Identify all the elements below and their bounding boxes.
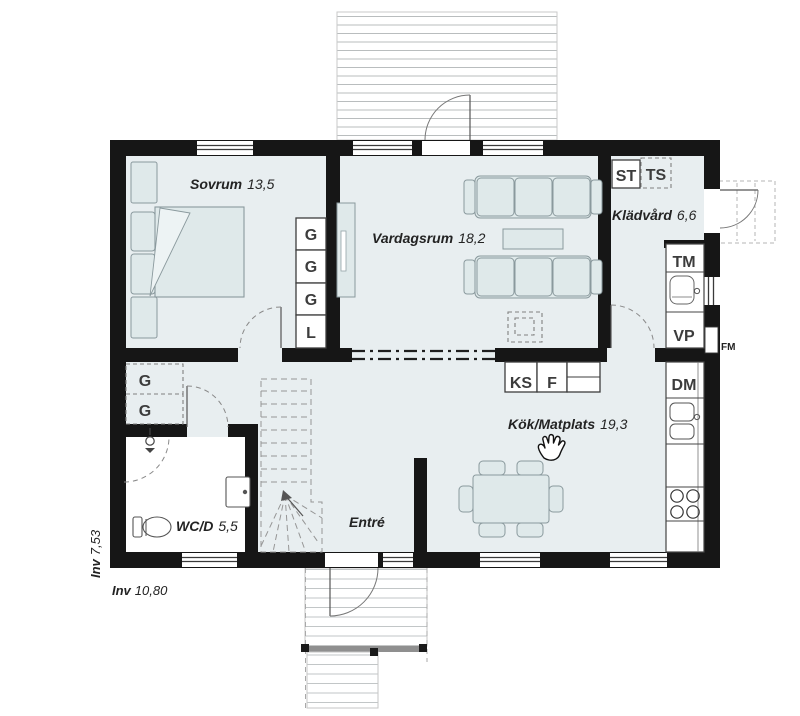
- bedroom-closets: G G G L: [296, 218, 326, 348]
- room-label-wcd: WC/D5,5: [176, 518, 238, 534]
- fm-label: FM: [721, 342, 735, 353]
- nightstand: [131, 297, 157, 338]
- chair: [517, 461, 543, 475]
- room-label-sovrum: Sovrum13,5: [190, 176, 275, 192]
- chair: [459, 486, 473, 512]
- closet-label: G: [305, 227, 317, 244]
- room-label-entre: Entré: [349, 514, 385, 530]
- window: [182, 553, 237, 567]
- room-label-kladvard: Klädvård6,6: [612, 207, 697, 223]
- washbasin-icon: [226, 477, 250, 507]
- pillow: [131, 212, 155, 251]
- porch-post: [419, 644, 427, 652]
- window: [610, 553, 667, 567]
- closet-label: G: [139, 403, 151, 420]
- closet-label: G: [305, 259, 317, 276]
- sofa: [464, 256, 602, 298]
- floorplan-page: G G G L: [0, 0, 800, 716]
- floorplan-drawing: G G G L: [0, 0, 800, 716]
- dimension-inner-width: Inv10,80: [112, 583, 168, 598]
- dm-label: DM: [672, 377, 697, 394]
- kitchen-counter: DM: [666, 362, 704, 552]
- window: [197, 141, 253, 155]
- sofa: [464, 176, 602, 218]
- closet-label: G: [139, 373, 151, 390]
- porch-post: [370, 648, 378, 656]
- fm-meter-cabinet: [705, 327, 718, 353]
- chair: [549, 486, 563, 512]
- room-label-kok-matplats: Kök/Matplats19,3: [508, 416, 628, 432]
- window: [704, 277, 720, 305]
- ks-label: KS: [510, 375, 533, 392]
- st-label: ST: [616, 168, 637, 185]
- tm-label: TM: [672, 254, 695, 271]
- room-label-vardagsrum: Vardagsrum18,2: [372, 230, 486, 246]
- porch-post: [301, 644, 309, 652]
- entrance-porch: [301, 568, 427, 708]
- dining-table: [473, 475, 549, 523]
- dimension-inner-depth: Inv7,53: [88, 529, 103, 578]
- window: [480, 553, 540, 567]
- closet-label: G: [305, 292, 317, 309]
- top-deck: [337, 12, 557, 140]
- window: [483, 141, 543, 155]
- f-label: F: [547, 375, 557, 392]
- nightstand: [131, 162, 157, 203]
- media-shelf: [337, 203, 355, 297]
- coffee-table: [503, 229, 563, 249]
- ts-label: TS: [646, 167, 667, 184]
- laundry-counter: TM VP: [666, 244, 704, 348]
- window: [353, 141, 412, 155]
- closet-label: L: [306, 325, 316, 342]
- chair: [479, 523, 505, 537]
- toilet-icon: [133, 517, 171, 537]
- fridge-freezer-row: KS F: [505, 362, 600, 392]
- window: [383, 553, 413, 567]
- chair: [517, 523, 543, 537]
- vp-label: VP: [673, 328, 695, 345]
- chair: [479, 461, 505, 475]
